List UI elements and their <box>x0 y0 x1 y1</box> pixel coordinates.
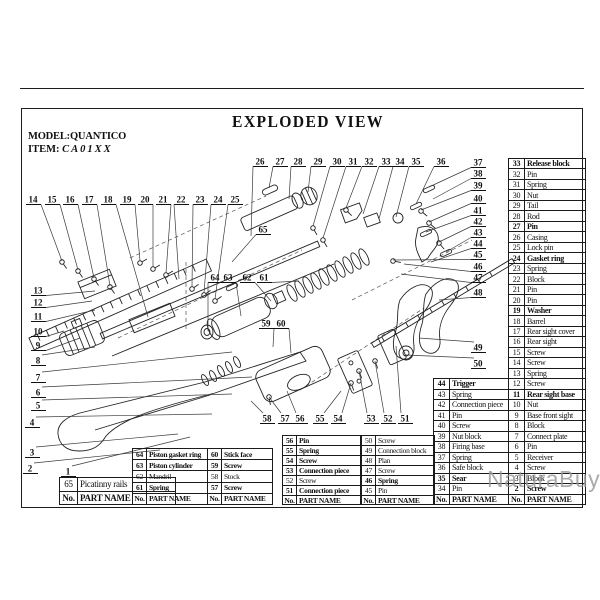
part-name: Connection block <box>376 446 426 455</box>
part-name: PART NAME <box>376 496 420 505</box>
part-name: Nut <box>525 400 538 409</box>
scanned-diagram-page: EXPLODED VIEW MODEL:QUANTICO ITEM: CA01X… <box>0 0 600 600</box>
callout-number-51: 51 <box>401 414 411 424</box>
part-row: 60Stick face <box>208 449 272 459</box>
part-name: Connection piece <box>297 486 349 495</box>
part-name: Nut block <box>450 432 481 441</box>
part-row: 65Picatinny rails <box>60 478 175 491</box>
callout-number-10: 10 <box>34 327 44 337</box>
callout-number-27: 27 <box>276 157 286 167</box>
callout-number-18: 18 <box>104 195 114 205</box>
part-number: 63 <box>133 460 147 470</box>
part-row: 28Rod <box>509 210 585 220</box>
part-name: Sear <box>450 474 466 483</box>
part-number: No. <box>208 494 222 504</box>
muzzle-part <box>55 313 106 357</box>
callout-number-2: 2 <box>28 464 33 474</box>
part-row: 42Connection piece <box>434 399 508 410</box>
part-name: Trigger <box>450 379 476 388</box>
part-number: 52 <box>283 476 297 485</box>
part-number: 57 <box>208 483 222 493</box>
callout-number-6: 6 <box>36 388 41 398</box>
part-name: Rear sight cover <box>525 327 575 336</box>
part-name: Stick face <box>222 450 252 459</box>
part-name: Pin <box>376 486 387 495</box>
part-name: Pin <box>525 442 537 451</box>
part-number: 33 <box>509 159 525 168</box>
part-number: 21 <box>509 285 525 294</box>
table-header-row: No.PART NAME <box>283 495 360 505</box>
part-name: Screw <box>525 358 546 367</box>
part-number: 15 <box>509 348 525 357</box>
callout-number-61: 61 <box>260 273 270 283</box>
part-row: 20Pin <box>509 294 585 304</box>
callout-number-48: 48 <box>474 288 484 298</box>
part-number: 37 <box>434 453 450 463</box>
part-name: PART NAME <box>525 495 572 504</box>
callout-number-45: 45 <box>474 250 484 260</box>
part-name: Pin <box>525 170 537 179</box>
callout-number-30: 30 <box>333 157 343 167</box>
part-row: 39Nut block <box>434 431 508 442</box>
part-name: Screw <box>222 461 242 470</box>
callout-number-57: 57 <box>281 414 291 424</box>
callout-number-32: 32 <box>365 157 375 167</box>
callout-number-5: 5 <box>36 401 41 411</box>
callout-number-52: 52 <box>384 414 394 424</box>
part-row: 47Screw <box>362 465 434 475</box>
part-name: Connection piece <box>450 400 503 409</box>
part-name: Rear sight base <box>525 390 575 399</box>
grip-part <box>393 285 432 359</box>
part-row: 38Firing base <box>434 441 508 452</box>
part-name: Spring <box>525 369 547 378</box>
callout-number-41: 41 <box>474 206 484 216</box>
part-row: 64Piston gasket ring <box>133 449 207 459</box>
trigger-housing-part <box>253 344 333 404</box>
part-number: 64 <box>133 449 147 459</box>
part-name: Plan <box>376 456 390 465</box>
callout-number-15: 15 <box>48 195 58 205</box>
part-name: Casing <box>525 233 547 242</box>
callout-number-26: 26 <box>256 157 266 167</box>
part-name: Screw <box>525 348 546 357</box>
part-row: 49Connection block <box>362 445 434 455</box>
part-name: Screw <box>297 476 316 485</box>
part-number: 30 <box>509 190 525 199</box>
part-number: 46 <box>362 476 376 485</box>
callout-number-1: 1 <box>66 467 71 477</box>
part-name: Gasket ring <box>525 254 564 263</box>
part-number: 16 <box>509 337 525 346</box>
callout-number-39: 39 <box>474 181 484 191</box>
part-number: No. <box>509 495 525 504</box>
part-row: 26Casing <box>509 231 585 241</box>
part-number: 45 <box>362 486 376 495</box>
part-row: 58Stock <box>208 470 272 481</box>
part-row: 19Washer <box>509 305 585 315</box>
part-number: 11 <box>509 390 525 399</box>
callout-number-14: 14 <box>29 195 39 205</box>
part-number: 22 <box>509 274 525 283</box>
callout-number-11: 11 <box>34 312 43 322</box>
part-number: 14 <box>509 358 525 367</box>
callout-number-50: 50 <box>474 359 484 369</box>
part-name: Spring <box>297 446 319 455</box>
part-row: 33Release block <box>509 159 585 168</box>
part-row: 22Block <box>509 273 585 283</box>
part-name: Stock <box>222 472 240 481</box>
callout-number-36: 36 <box>437 157 447 167</box>
part-name: Firing base <box>450 442 484 451</box>
part-row: 11Rear sight base <box>509 389 585 399</box>
part-number: 7 <box>509 432 525 441</box>
part-row: 31Spring <box>509 179 585 189</box>
callout-number-20: 20 <box>141 195 151 205</box>
part-name: Washer <box>525 306 551 315</box>
part-number: 44 <box>434 379 450 389</box>
part-row: 8Block <box>509 420 585 430</box>
part-name: Base front sight <box>525 411 573 420</box>
table-header-row: No.PART NAME <box>509 494 585 504</box>
callout-number-3: 3 <box>30 448 35 458</box>
part-number: 5 <box>509 453 525 462</box>
part-name: Spring <box>450 453 472 462</box>
part-name: Spring <box>525 180 547 189</box>
callout-number-35: 35 <box>412 157 422 167</box>
part-name: Spring <box>525 264 547 273</box>
part-number: 32 <box>509 169 525 178</box>
part-number: 42 <box>434 400 450 410</box>
parts-table-d: 56Pin55Spring54Screw53Connection piece52… <box>282 435 361 505</box>
part-row: 59Screw <box>208 459 272 470</box>
part-number: 47 <box>362 466 376 475</box>
part-row: 46Spring <box>362 475 434 485</box>
callout-number-63: 63 <box>224 273 234 283</box>
callout-number-23: 23 <box>196 195 206 205</box>
callout-number-58: 58 <box>263 414 273 424</box>
part-row: 27Pin <box>509 221 585 231</box>
parts-table-right: 33Release block32Pin31Spring30Nut29Tail2… <box>508 158 586 505</box>
callout-number-44: 44 <box>474 239 484 249</box>
part-row: 23Spring <box>509 263 585 273</box>
part-number: 60 <box>208 449 222 459</box>
callout-number-16: 16 <box>66 195 76 205</box>
part-number: 53 <box>283 466 297 475</box>
part-row: 41Pin <box>434 410 508 421</box>
callout-number-43: 43 <box>474 228 484 238</box>
callout-number-28: 28 <box>294 157 304 167</box>
callout-number-54: 54 <box>334 414 344 424</box>
part-row: 7Connect plate <box>509 431 585 441</box>
part-row: 51Connection piece <box>283 485 360 495</box>
part-number: 35 <box>434 474 450 484</box>
part-row: 32Pin <box>509 168 585 178</box>
part-number: 25 <box>509 243 525 252</box>
part-row: 48Plan <box>362 455 434 465</box>
part-row: 16Rear sight <box>509 336 585 346</box>
part-row: 29Tail <box>509 200 585 210</box>
part-row: 14Screw <box>509 357 585 367</box>
callout-number-9: 9 <box>36 341 41 351</box>
rod-part <box>371 259 514 348</box>
callout-number-53: 53 <box>367 414 377 424</box>
part-name: Connection piece <box>297 466 349 475</box>
part-number: 10 <box>509 400 525 409</box>
part-row: 56Pin <box>283 436 360 445</box>
part-name: Lock pin <box>525 243 553 252</box>
part-name: Screw <box>297 456 317 465</box>
part-row: 63Piston cylinder <box>133 459 207 470</box>
part-row: 52Screw <box>283 475 360 485</box>
parts-table-c: 60Stick face59Screw58Stock57ScrewNo.PART… <box>207 448 273 505</box>
part-name: PART NAME <box>450 495 497 504</box>
part-number: 38 <box>434 442 450 452</box>
part-number: 36 <box>434 463 450 473</box>
part-row: 53Connection piece <box>283 465 360 475</box>
part-number: 13 <box>509 369 525 378</box>
part-row: 24Gasket ring <box>509 252 585 262</box>
part-name: Rod <box>525 212 539 221</box>
callout-number-17: 17 <box>85 195 95 205</box>
part-row: 17Rear sight cover <box>509 326 585 336</box>
part-name: Block <box>525 421 545 430</box>
part-number: 58 <box>208 471 222 481</box>
part-name: Safe block <box>450 463 483 472</box>
part-name: Barrel <box>525 317 545 326</box>
callout-number-25: 25 <box>231 195 241 205</box>
part-number: 65 <box>60 478 78 491</box>
part-name: Pin <box>525 296 537 305</box>
part-number: No. <box>60 492 78 505</box>
table-header-row: No.PART NAME <box>208 493 272 504</box>
part-number: 17 <box>509 327 525 336</box>
part-row: 30Nut <box>509 189 585 199</box>
callout-number-4: 4 <box>30 418 35 428</box>
part-row: 25Lock pin <box>509 242 585 252</box>
table-header-row: No.PART NAME <box>60 491 175 505</box>
part-name: Screw <box>376 436 395 445</box>
part-name: Pin <box>525 222 538 231</box>
part-number: 43 <box>434 390 450 400</box>
callout-number-34: 34 <box>396 157 406 167</box>
part-name: Piston cylinder <box>147 461 193 470</box>
part-name: Receiver <box>525 453 553 462</box>
parts-table-e: 50Screw49Connection block48Plan47Screw46… <box>361 435 435 505</box>
part-number: 55 <box>283 446 297 455</box>
part-name: Tail <box>525 201 538 210</box>
callout-number-22: 22 <box>177 195 187 205</box>
callout-number-64: 64 <box>211 273 221 283</box>
part-number: 56 <box>283 436 297 445</box>
part-name: Block <box>525 275 545 284</box>
callout-number-47: 47 <box>474 273 484 283</box>
part-row: 50Screw <box>362 436 434 445</box>
part-row: 54Screw <box>283 455 360 465</box>
part-row: 10Nut <box>509 399 585 409</box>
part-name: Pin <box>450 484 462 493</box>
part-name: Screw <box>376 466 395 475</box>
part-row: 13Spring <box>509 368 585 378</box>
part-name: Connect plate <box>525 432 567 441</box>
part-row: 12Screw <box>509 378 585 388</box>
part-row: 15Screw <box>509 347 585 357</box>
part-number: 34 <box>434 484 450 494</box>
screw-parts <box>59 207 446 406</box>
part-number: 31 <box>509 180 525 189</box>
part-number: 54 <box>283 456 297 465</box>
part-name: Rear sight <box>525 337 557 346</box>
callout-number-42: 42 <box>474 217 484 227</box>
part-number: 26 <box>509 232 525 241</box>
part-number: 39 <box>434 432 450 442</box>
callout-number-24: 24 <box>214 195 224 205</box>
callout-number-8: 8 <box>36 356 41 366</box>
part-row: 5Receiver <box>509 452 585 462</box>
part-number: 51 <box>283 486 297 495</box>
part-number: 27 <box>509 222 525 231</box>
callout-number-40: 40 <box>474 194 484 204</box>
callout-number-7: 7 <box>36 373 41 383</box>
callout-number-13: 13 <box>34 286 44 296</box>
part-name: Pin <box>525 285 537 294</box>
part-name: Pin <box>297 436 309 445</box>
part-name: Pin <box>450 411 462 420</box>
part-name: PART NAME <box>297 496 341 505</box>
callout-number-56: 56 <box>296 414 306 424</box>
callout-number-62: 62 <box>243 273 253 283</box>
part-number: 50 <box>362 436 376 445</box>
part-number: 8 <box>509 421 525 430</box>
part-row: 45Pin <box>362 485 434 495</box>
callout-number-21: 21 <box>159 195 169 205</box>
part-row: 44Trigger <box>434 379 508 389</box>
part-number: 24 <box>509 253 525 262</box>
part-name: Screw <box>450 421 471 430</box>
part-number: 28 <box>509 211 525 220</box>
part-name: Piston gasket ring <box>147 450 201 459</box>
part-row: 57Screw <box>208 482 272 493</box>
callout-number-12: 12 <box>34 298 44 308</box>
part-name: Screw <box>525 379 546 388</box>
callout-number-65: 65 <box>259 225 269 235</box>
table-header-row: No.PART NAME <box>434 494 508 505</box>
part-number: 48 <box>362 456 376 465</box>
part-number: No. <box>362 496 376 505</box>
part-number: 20 <box>509 295 525 304</box>
part-row: 18Barrel <box>509 315 585 325</box>
part-row: 9Base front sight <box>509 410 585 420</box>
part-number: 40 <box>434 421 450 431</box>
part-row: 43Spring <box>434 389 508 400</box>
part-number: 12 <box>509 379 525 388</box>
callout-number-59: 59 <box>262 319 272 329</box>
part-number: 19 <box>509 306 525 315</box>
callout-number-38: 38 <box>474 169 484 179</box>
part-number: 49 <box>362 446 376 455</box>
callout-number-33: 33 <box>382 157 392 167</box>
callout-number-49: 49 <box>474 343 484 353</box>
callout-number-37: 37 <box>474 158 484 168</box>
part-number: 23 <box>509 264 525 273</box>
part-name: Nut <box>525 191 538 200</box>
part-name: Picatinny rails <box>78 479 127 489</box>
naturabuy-watermark: NaturaBuy <box>487 466 600 493</box>
part-row: 6Pin <box>509 441 585 451</box>
callout-number-55: 55 <box>316 414 326 424</box>
callout-number-19: 19 <box>123 195 133 205</box>
part-row: 55Spring <box>283 445 360 455</box>
part-row: 21Pin <box>509 284 585 294</box>
part-number: No. <box>283 496 297 505</box>
part-row: 40Screw <box>434 420 508 431</box>
part-number: 6 <box>509 442 525 451</box>
part-number: No. <box>434 495 450 505</box>
part-name: Release block <box>525 159 570 168</box>
callout-number-31: 31 <box>349 157 359 167</box>
part-number: 18 <box>509 316 525 325</box>
parts-table-a: 65Picatinny railsNo.PART NAME <box>59 477 176 505</box>
part-number: 41 <box>434 411 450 421</box>
part-name: Spring <box>376 476 398 485</box>
part-number: 9 <box>509 411 525 420</box>
part-name: Screw <box>222 483 242 492</box>
part-number: 59 <box>208 460 222 470</box>
part-name: Spring <box>450 390 472 399</box>
callout-number-29: 29 <box>314 157 324 167</box>
part-number: 29 <box>509 201 525 210</box>
part-name: PART NAME <box>78 493 130 503</box>
part-name: PART NAME <box>222 494 266 503</box>
part-row: 37Spring <box>434 452 508 463</box>
table-header-row: No.PART NAME <box>362 495 434 505</box>
callout-number-60: 60 <box>277 319 287 329</box>
callout-number-46: 46 <box>474 262 484 272</box>
